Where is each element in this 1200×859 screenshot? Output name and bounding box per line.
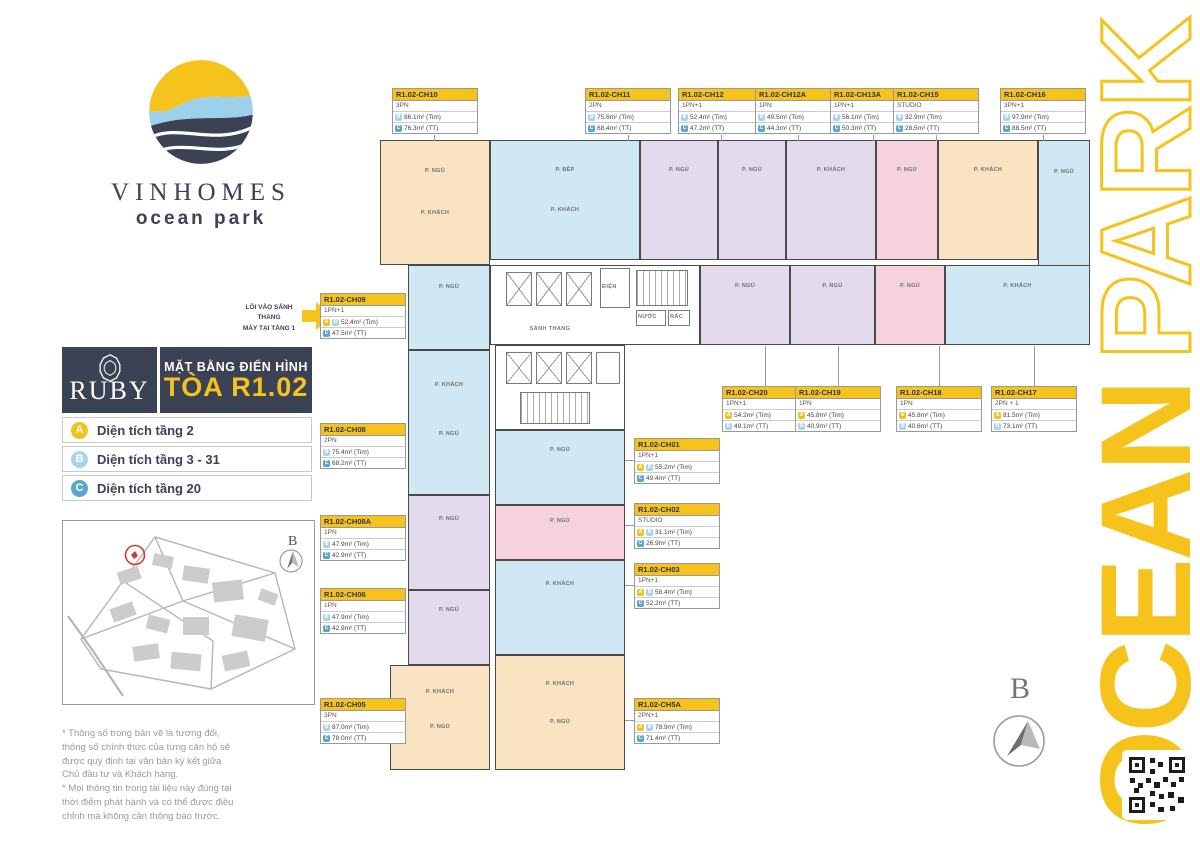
label-leader-line: [838, 346, 839, 386]
floor-badge: B: [323, 614, 330, 621]
unit-label-area-row: C78.0m² (TT): [321, 732, 405, 743]
room-label: P. NGỦ: [496, 719, 624, 725]
unit-label-area-row: AB58.4m² (Tim): [635, 586, 719, 597]
unit-label-area-value: 55.2m² (Tim): [655, 464, 692, 471]
unit-label-area-row: B52.4m² (Tim): [679, 111, 763, 122]
unit-label-area-value: 44.3m² (TT): [767, 125, 801, 132]
unit-label-area-row: B49.5m² (Tim): [756, 111, 840, 122]
floor-badge: A: [637, 724, 644, 731]
unit-label-id: R1.02-CH06: [321, 589, 405, 601]
room-label: P. NGỦ: [877, 167, 937, 173]
unit-ch20: P. NGỦ: [700, 265, 790, 345]
unit-label-area-row: B75.4m² (Tim): [321, 446, 405, 457]
unit-label-area-row: B40.9m² (TT): [796, 420, 880, 431]
label-leader-line: [625, 720, 634, 721]
unit-label-area-value: 32.9m² (Tim): [905, 114, 942, 121]
unit-label-area-value: 78.9m² (Tim): [655, 724, 692, 731]
unit-ch08a: P. NGỦ: [408, 495, 490, 590]
floor-badge: C: [588, 125, 595, 132]
unit-label-type: STUDIO: [635, 516, 719, 526]
unit-label-area-value: 47.2m² (TT): [690, 125, 724, 132]
floor-badge: B: [646, 724, 653, 731]
unit-label-area-row: B32.9m² (Tim): [894, 111, 978, 122]
unit-ch19: P. NGỦ: [790, 265, 875, 345]
label-leader-line: [625, 460, 634, 461]
unit-label-area-value: 88.5m² (TT): [1012, 125, 1046, 132]
unit-label-area-value: 42.9m² (TT): [332, 552, 366, 559]
floor-badge: B: [323, 449, 330, 456]
room-label: P. NGỦ: [719, 167, 785, 173]
unit-label-type: 1PN+1: [321, 306, 405, 316]
unit-label-area-value: 71.4m² (TT): [646, 735, 680, 742]
unit-label-id: R1.02-CH09: [321, 294, 405, 306]
unit-label-area-row: B47.9m² (Tim): [321, 611, 405, 622]
unit-label-area-row: C47.2m² (TT): [679, 122, 763, 133]
label-leader-line: [873, 135, 874, 141]
label-leader-line: [625, 585, 634, 586]
unit-ch13a: P. KHÁCH: [786, 140, 876, 260]
unit-label-area-row: AB31.1m² (Tim): [635, 526, 719, 537]
unit-label-area-row: C71.4m² (TT): [635, 732, 719, 743]
compass-icon: [990, 712, 1048, 770]
unit-label-area-value: 47.9m² (Tim): [332, 614, 369, 621]
unit-label-id: R1.02-CH16: [1001, 89, 1085, 101]
unit-label-type: 1PN: [756, 101, 840, 111]
floor-badge: A: [994, 412, 1001, 419]
unit-label-ch11: R1.02-CH112PNB75.6m² (Tim)C68.4m² (TT): [585, 88, 671, 134]
label-leader-line: [798, 135, 799, 141]
room-label: P. KHÁCH: [391, 689, 489, 695]
unit-label-area-row: C76.3m² (TT): [393, 122, 477, 133]
unit-label-area-value: 49.4m² (TT): [646, 475, 680, 482]
floor-badge: B: [725, 423, 732, 430]
floor-badge: C: [395, 125, 402, 132]
banner-word-park: PARK: [1083, 19, 1200, 360]
unit-label-type: 2PN: [586, 101, 670, 111]
unit-ch17: P. KHÁCH: [945, 265, 1090, 345]
floor-badge: C: [637, 475, 644, 482]
unit-label-area-value: 40.6m² (TT): [908, 423, 942, 430]
unit-label-area-value: 42.9m² (TT): [332, 625, 366, 632]
unit-label-area-row: C52.2m² (TT): [635, 597, 719, 608]
elevator-icon: [506, 272, 532, 306]
unit-label-ch18: R1.02-CH181PNA45.8m² (Tim)B40.6m² (TT): [896, 386, 982, 432]
label-leader-line: [1043, 135, 1044, 141]
unit-label-type: 3PN: [393, 101, 477, 111]
unit-label-area-value: 49.1m² (TT): [734, 423, 768, 430]
floor-badge: B: [994, 423, 1001, 430]
unit-label-type: 1PN+1: [679, 101, 763, 111]
floor-badge: A: [725, 412, 732, 419]
floor-badge: C: [637, 540, 644, 547]
unit-label-area-value: 40.9m² (TT): [807, 423, 841, 430]
unit-label-area-row: B75.6m² (Tim): [586, 111, 670, 122]
unit-label-id: R1.02-CH01: [635, 439, 719, 451]
unit-label-id: R1.02-CH08: [321, 424, 405, 436]
unit-ch16: P. KHÁCH: [938, 140, 1038, 260]
unit-label-area-value: 54.2m² (Tim): [734, 412, 771, 419]
unit-label-type: 1PN+1: [635, 451, 719, 461]
unit-ch12: P. NGỦ: [640, 140, 718, 260]
unit-label-ch06: R1.02-CH061PNB47.9m² (Tim)C42.9m² (TT): [320, 588, 406, 634]
floor-badge: A: [899, 412, 906, 419]
floor-badge: B: [323, 541, 330, 548]
unit-label-area-row: B97.9m² (Tim): [1001, 111, 1085, 122]
unit-label-area-value: 26.9m² (TT): [646, 540, 680, 547]
unit-label-area-row: C68.4m² (TT): [586, 122, 670, 133]
unit-label-area-value: 75.6m² (Tim): [597, 114, 634, 121]
unit-label-ch12: R1.02-CH121PN+1B52.4m² (Tim)C47.2m² (TT): [678, 88, 764, 134]
unit-label-area-value: 87.0m² (Tim): [332, 724, 369, 731]
unit-label-area-row: AB78.9m² (Tim): [635, 721, 719, 732]
unit-label-area-value: 50.3m² (TT): [842, 125, 876, 132]
room-label: P. NGỦ: [409, 607, 489, 613]
room-label: P. KHÁCH: [946, 283, 1089, 289]
stairs-icon: [520, 392, 590, 424]
unit-label-area-row: C42.9m² (TT): [321, 622, 405, 633]
unit-label-area-value: 97.9m² (Tim): [1012, 114, 1049, 121]
unit-label-ch05: R1.02-CH053PNB87.0m² (Tim)C78.0m² (TT): [320, 698, 406, 744]
elevator-icon: [506, 352, 532, 384]
elevator-icon: [566, 352, 592, 384]
floor-badge: B: [395, 114, 402, 121]
qr-code: [1122, 750, 1192, 820]
unit-label-ch12a: R1.02-CH12A1PNB49.5m² (Tim)C44.3m² (TT): [755, 88, 841, 134]
unit-label-id: R1.02-CH18: [897, 387, 981, 399]
unit-label-ch09: R1.02-CH091PN+1AB52.4m² (Tim)C47.5m² (TT…: [320, 293, 406, 339]
room-label: P. NGỦ: [791, 283, 874, 289]
unit-label-area-row: B87.0m² (Tim): [321, 721, 405, 732]
unit-label-area-row: C44.3m² (TT): [756, 122, 840, 133]
unit-ch15: P. NGỦ: [876, 140, 938, 260]
room-label: P. NGỦ: [496, 518, 624, 524]
unit-ch08: P. KHÁCHP. NGỦ: [408, 350, 490, 495]
floor-badge: B: [899, 423, 906, 430]
unit-label-type: 2PN+1: [635, 711, 719, 721]
unit-label-ch19: R1.02-CH191PNA45.8m² (Tim)B40.9m² (TT): [795, 386, 881, 432]
label-leader-line: [628, 135, 629, 141]
label-leader-line: [1034, 346, 1035, 386]
elevator-icon: [566, 272, 592, 306]
room-label: P. KHÁCH: [787, 167, 875, 173]
unit-label-area-row: C28.5m² (TT): [894, 122, 978, 133]
unit-label-id: R1.02-CH10: [393, 89, 477, 101]
stairs-icon: [636, 270, 688, 306]
unit-label-area-value: 28.5m² (TT): [905, 125, 939, 132]
unit-label-area-value: 78.0m² (TT): [332, 735, 366, 742]
water-label: NƯỚC: [638, 314, 657, 320]
room-label: P. KHÁCH: [491, 207, 639, 213]
unit-ch11: P. BẾPP. KHÁCH: [490, 140, 640, 260]
room-label: P. KHÁCH: [496, 581, 624, 587]
floor-badge: B: [323, 724, 330, 731]
floor-badge: A: [323, 319, 330, 326]
unit-label-area-value: 49.5m² (Tim): [767, 114, 804, 121]
floor-badge: B: [588, 114, 595, 121]
label-leader-line: [936, 135, 937, 141]
unit-label-area-row: B86.1m² (Tim): [393, 111, 477, 122]
room-label: P. NGỦ: [409, 284, 489, 290]
elevator-icon: [536, 352, 562, 384]
floor-badge: A: [637, 464, 644, 471]
unit-ch10: P. NGỦP. KHÁCH: [380, 140, 490, 265]
unit-label-id: R1.02-CH5A: [635, 699, 719, 711]
unit-label-area-row: C68.2m² (TT): [321, 457, 405, 468]
unit-label-area-row: C26.9m² (TT): [635, 537, 719, 548]
unit-label-area-value: 52.4m² (Tim): [690, 114, 727, 121]
unit-label-area-value: 58.4m² (Tim): [655, 589, 692, 596]
unit-label-ch10: R1.02-CH103PNB86.1m² (Tim)C76.3m² (TT): [392, 88, 478, 134]
floor-badge: C: [1003, 125, 1010, 132]
room-label: P. KHÁCH: [939, 167, 1037, 173]
elevator-icon: [536, 272, 562, 306]
unit-label-area-row: C42.9m² (TT): [321, 549, 405, 560]
label-leader-line: [625, 525, 634, 526]
unit-label-id: R1.02-CH02: [635, 504, 719, 516]
label-leader-line: [721, 135, 722, 141]
unit-label-type: 3PN: [321, 711, 405, 721]
unit-label-type: 1PN: [796, 399, 880, 409]
room-label: P. KHÁCH: [496, 681, 624, 687]
floor-badge: C: [833, 125, 840, 132]
unit-label-id: R1.02-CH08A: [321, 516, 405, 528]
floor-badge: C: [896, 125, 903, 132]
room-label: P. BẾP: [491, 167, 639, 173]
unit-label-area-value: 52.2m² (TT): [646, 600, 680, 607]
floor-badge: A: [637, 529, 644, 536]
unit-label-area-value: 68.2m² (TT): [332, 460, 366, 467]
unit-label-type: STUDIO: [894, 101, 978, 111]
unit-label-id: R1.02-CH17: [992, 387, 1076, 399]
unit-ch03: P. KHÁCH: [495, 560, 625, 655]
floor-badge: B: [1003, 114, 1010, 121]
unit-label-area-row: AB55.2m² (Tim): [635, 461, 719, 472]
unit-label-type: 1PN+1: [635, 576, 719, 586]
unit-label-ch08a: R1.02-CH08A1PNB47.9m² (Tim)C42.9m² (TT): [320, 515, 406, 561]
unit-label-area-row: B40.6m² (TT): [897, 420, 981, 431]
unit-label-area-value: 86.1m² (Tim): [404, 114, 441, 121]
side-banner: OCEAN PARK: [1072, 0, 1200, 859]
electric-label: ĐIỆN: [602, 284, 617, 290]
trash-label: RÁC: [670, 314, 683, 320]
unit-label-area-value: 45.8m² (Tim): [807, 412, 844, 419]
unit-ch12a: P. NGỦ: [718, 140, 786, 260]
compass-label: B: [1010, 672, 1030, 706]
unit-label-area-value: 45.8m² (Tim): [908, 412, 945, 419]
unit-label-area-row: C47.5m² (TT): [321, 327, 405, 338]
unit-label-type: 1PN: [321, 528, 405, 538]
unit-label-area-row: B73.1m² (TT): [992, 420, 1076, 431]
unit-ch5a: P. KHÁCHP. NGỦ: [495, 655, 625, 770]
unit-label-id: R1.02-CH19: [796, 387, 880, 399]
unit-ch09: P. NGỦ: [408, 265, 490, 350]
unit-label-id: R1.02-CH12: [679, 89, 763, 101]
label-leader-line: [939, 346, 940, 386]
shaft-room: [596, 352, 620, 384]
unit-label-ch08: R1.02-CH082PNB75.4m² (Tim)C68.2m² (TT): [320, 423, 406, 469]
unit-ch18: P. NGỦ: [875, 265, 945, 345]
room-label: P. NGỦ: [409, 516, 489, 522]
floor-badge: C: [758, 125, 765, 132]
unit-label-type: 3PN+1: [1001, 101, 1085, 111]
floor-badge: B: [798, 423, 805, 430]
unit-label-type: 1PN: [321, 601, 405, 611]
room-label: P. NGỦ: [496, 447, 624, 453]
floor-badge: B: [758, 114, 765, 121]
floor-badge: C: [323, 460, 330, 467]
unit-label-area-value: 47.5m² (TT): [332, 330, 366, 337]
label-leader-line: [765, 346, 766, 386]
unit-label-area-value: 73.1m² (TT): [1003, 423, 1037, 430]
unit-label-area-value: 52.4m² (Tim): [341, 319, 378, 326]
room-label: P. NGỦ: [701, 283, 789, 289]
unit-label-area-value: 75.4m² (Tim): [332, 449, 369, 456]
unit-label-area-row: B47.9m² (Tim): [321, 538, 405, 549]
unit-label-area-value: 68.4m² (TT): [597, 125, 631, 132]
floor-badge: C: [323, 735, 330, 742]
unit-label-area-row: A45.8m² (Tim): [897, 409, 981, 420]
unit-label-area-value: 47.9m² (Tim): [332, 541, 369, 548]
unit-label-ch5a: R1.02-CH5A2PN+1AB78.9m² (Tim)C71.4m² (TT…: [634, 698, 720, 744]
room-label: P. NGỦ: [876, 283, 944, 289]
floor-badge: C: [323, 552, 330, 559]
unit-ch02: P. NGỦ: [495, 505, 625, 560]
unit-label-type: 2PN + 1: [992, 399, 1076, 409]
floor-badge: C: [681, 125, 688, 132]
unit-label-id: R1.02-CH11: [586, 89, 670, 101]
floor-badge: B: [833, 114, 840, 121]
room-label: P. NGỦ: [381, 168, 489, 174]
unit-label-id: R1.02-CH05: [321, 699, 405, 711]
unit-ch01: P. NGỦ: [495, 430, 625, 505]
unit-label-type: 2PN: [321, 436, 405, 446]
unit-label-area-row: A45.8m² (Tim): [796, 409, 880, 420]
unit-label-id: R1.02-CH03: [635, 564, 719, 576]
room-label: P. NGỦ: [641, 167, 717, 173]
unit-label-area-row: C88.5m² (TT): [1001, 122, 1085, 133]
lobby-label: SẢNH THANG: [502, 326, 598, 332]
unit-label-area-row: C49.4m² (TT): [635, 472, 719, 483]
floor-badge: C: [637, 600, 644, 607]
floor-badge: C: [637, 735, 644, 742]
unit-label-ch03: R1.02-CH031PN+1AB58.4m² (Tim)C52.2m² (TT…: [634, 563, 720, 609]
floor-badge: A: [798, 412, 805, 419]
floor-badge: B: [646, 589, 653, 596]
unit-label-ch17: R1.02-CH172PN + 1A81.5m² (Tim)B73.1m² (T…: [991, 386, 1077, 432]
unit-label-ch15: R1.02-CH15STUDIOB32.9m² (Tim)C28.5m² (TT…: [893, 88, 979, 134]
unit-label-ch02: R1.02-CH02STUDIOAB31.1m² (Tim)C26.9m² (T…: [634, 503, 720, 549]
floor-badge: B: [646, 529, 653, 536]
label-leader-line: [434, 135, 435, 141]
unit-label-type: 1PN: [897, 399, 981, 409]
floor-badge: A: [637, 589, 644, 596]
room-label: P. KHÁCH: [409, 382, 489, 388]
floor-badge: B: [332, 319, 339, 326]
unit-label-id: R1.02-CH15: [894, 89, 978, 101]
floor-badge: B: [646, 464, 653, 471]
floor-badge: C: [323, 625, 330, 632]
unit-label-id: R1.02-CH12A: [756, 89, 840, 101]
unit-label-ch01: R1.02-CH011PN+1AB55.2m² (Tim)C49.4m² (TT…: [634, 438, 720, 484]
unit-label-area-value: 56.1m² (Tim): [842, 114, 879, 121]
unit-ch06: P. NGỦ: [408, 590, 490, 665]
room-label: P. KHÁCH: [381, 210, 489, 216]
unit-label-ch16: R1.02-CH163PN+1B97.9m² (Tim)C88.5m² (TT): [1000, 88, 1086, 134]
unit-label-area-value: 81.5m² (Tim): [1003, 412, 1040, 419]
unit-label-area-row: AB52.4m² (Tim): [321, 316, 405, 327]
floor-badge: C: [323, 330, 330, 337]
floor-badge: B: [681, 114, 688, 121]
unit-label-area-value: 76.3m² (TT): [404, 125, 438, 132]
room-label: P. NGỦ: [409, 431, 489, 437]
unit-label-area-row: A81.5m² (Tim): [992, 409, 1076, 420]
unit-label-area-value: 31.1m² (Tim): [655, 529, 692, 536]
floor-badge: B: [896, 114, 903, 121]
